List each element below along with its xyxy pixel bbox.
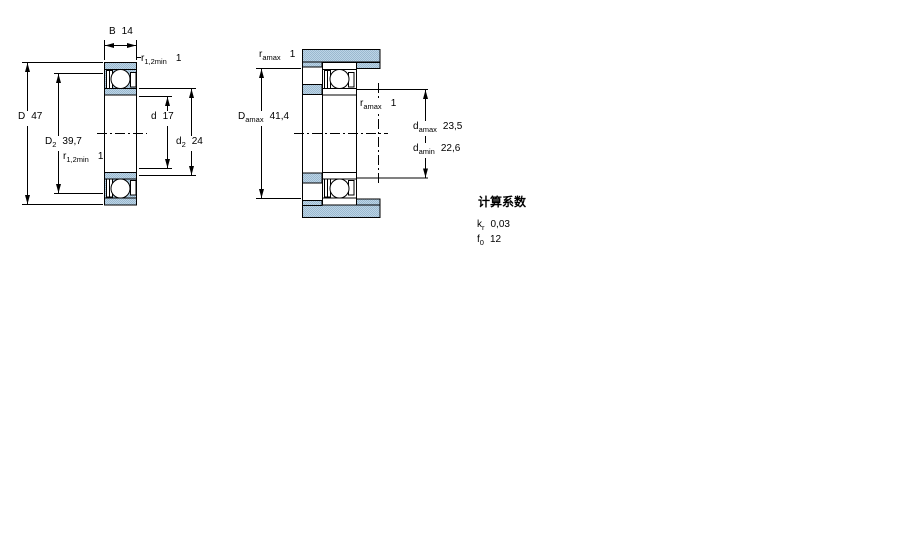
dim-label-ramax-mid: ramax1 bbox=[359, 98, 397, 113]
factor-kr: kr0,03 bbox=[477, 219, 510, 234]
left-bottom-ball bbox=[111, 179, 130, 198]
factors-title: 计算系数 bbox=[478, 196, 526, 208]
housing-shoulder-bottom-right bbox=[357, 199, 381, 205]
housing-shoulder-bottom-left bbox=[303, 201, 323, 206]
left-bearing-view bbox=[97, 63, 147, 206]
dim-label-Damax: Damax41,4 bbox=[237, 111, 290, 126]
housing-block-top bbox=[303, 50, 381, 63]
left-top-ball bbox=[111, 70, 130, 89]
dim-label-ramax-top: ramax1 bbox=[259, 49, 295, 64]
dim-label-B: B14 bbox=[109, 26, 133, 41]
dim-label-r12min-mid: r1,2min1 bbox=[62, 151, 104, 166]
right-top-ball bbox=[330, 70, 349, 89]
right-bottom-ball bbox=[330, 179, 349, 198]
factor-f0: f012 bbox=[477, 234, 501, 249]
dim-label-damax: damax23,5 bbox=[412, 121, 463, 136]
dim-label-D: D47 bbox=[17, 111, 43, 126]
dim-label-damin: damin22,6 bbox=[412, 143, 461, 158]
shaft-shoulder-bottom bbox=[303, 173, 323, 183]
left-bottom-recess bbox=[131, 181, 137, 196]
technical-drawing-canvas bbox=[0, 0, 900, 560]
bearing-drawing-page: B14 r1,2min1 D47 D239,7 r1,2min1 d17 d22… bbox=[0, 0, 900, 560]
dim-label-d2: d224 bbox=[175, 136, 204, 151]
dim-label-D2: D239,7 bbox=[44, 136, 83, 151]
dim-label-d: d17 bbox=[150, 111, 175, 126]
right-mounting-view bbox=[294, 50, 388, 218]
shaft-shoulder-top bbox=[303, 85, 323, 95]
housing-shoulder-top-right bbox=[357, 63, 381, 69]
housing-block-bottom bbox=[303, 205, 381, 218]
dim-label-r12min-top: r1,2min1 bbox=[141, 53, 181, 68]
left-top-recess bbox=[131, 73, 137, 88]
housing-shoulder-top-left bbox=[303, 62, 323, 67]
